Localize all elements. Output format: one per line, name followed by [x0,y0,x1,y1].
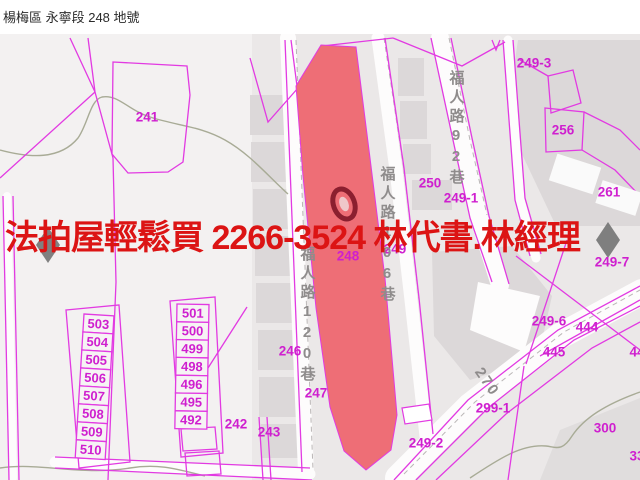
unit-label: 505 [85,352,108,368]
map-viewer-window: 5035045055065075085095105015004994984964… [0,0,640,480]
unit-label: 507 [83,388,106,404]
unit-column-right: 501500499498496495492 [175,304,209,429]
unit-label: 500 [182,323,204,338]
title-bar: 楊梅區 永寧段 248 地號 [0,0,640,34]
ad-overlay-text: 法拍屋輕鬆買 2266-3524 林代書.林經理 [5,210,580,259]
unit-label: 496 [181,377,203,392]
unit-label: 498 [181,359,203,374]
unit-label: 508 [82,406,105,422]
unit-label: 506 [84,370,107,386]
unit-label: 509 [81,424,104,440]
page-title: 楊梅區 永寧段 248 地號 [3,7,140,26]
unit-label: 499 [181,341,203,356]
unit-label: 492 [180,412,202,427]
unit-label: 510 [79,442,102,458]
unit-label: 495 [180,394,202,409]
unit-label: 503 [87,316,110,332]
unit-label: 501 [182,305,204,320]
unit-label: 504 [86,334,109,350]
